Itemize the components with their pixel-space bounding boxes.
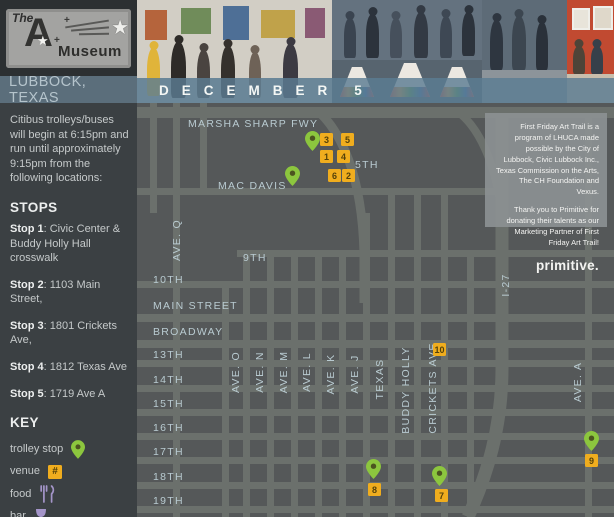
street-label-ave-m: AVE. M — [278, 351, 290, 394]
partner-thanks-text: Thank you to Primitive for donating thei… — [495, 205, 599, 249]
key-item-venue: venue# — [10, 460, 129, 483]
venue-marker-1: 1 — [320, 150, 333, 163]
trolley-stop-pin-icon — [71, 440, 85, 459]
stops-list: Stop 1: Civic Center & Buddy Holly Hall … — [10, 222, 129, 401]
museum-logo: The A ★ Museum ★ + + — [6, 9, 131, 68]
key-item-label: trolley stop — [10, 442, 63, 457]
street-label-ave-j: AVE. J — [349, 354, 361, 393]
shooting-star-icon: ★ — [111, 15, 129, 40]
venue-marker-2: 2 — [342, 169, 355, 182]
street-label-crickets-ave: CRICKETS AVE — [427, 342, 439, 433]
street-label-ave-n: AVE. N — [254, 351, 266, 392]
stop-item-2: Stop 2: 1103 Main Street, — [10, 278, 129, 307]
venue-marker-8: 8 — [368, 483, 381, 496]
key-item-label: bar — [10, 509, 26, 517]
sparkle-icon: + — [64, 15, 70, 26]
program-credit-text: First Friday Art Trail is a program of L… — [495, 122, 599, 198]
street-label-ave-a: AVE. A — [572, 362, 584, 402]
map-key-legend: trolley stopvenue#foodbarlive performanc… — [10, 438, 129, 517]
street-label-main-street: MAIN STREET — [153, 300, 238, 312]
street-label-13th: 13TH — [153, 349, 184, 361]
venue-marker-4: 4 — [337, 150, 350, 163]
venue-marker-6: 6 — [328, 169, 341, 182]
venue-marker-5: 5 — [341, 133, 354, 146]
street-label-ave-q: AVE. Q — [171, 219, 183, 261]
date-banner: DECEMBER 5 — [137, 78, 614, 103]
banner-day: 5 — [354, 83, 362, 98]
stop-item-4: Stop 4: 1812 Texas Ave — [10, 360, 129, 375]
primitive-logo: primitive. — [495, 256, 599, 276]
trolley-stop-pin-icon — [366, 459, 381, 479]
street-label-9th: 9TH — [243, 252, 267, 264]
key-item-label: food — [10, 487, 31, 502]
trolley-info-text: Citibus trolleys/buses will begin at 6:1… — [10, 113, 129, 186]
star-trail-line — [79, 33, 109, 35]
logo-museum: Museum — [58, 43, 122, 60]
key-item-food: food — [10, 483, 129, 506]
street-label-17th: 17TH — [153, 446, 184, 458]
stop-item-5: Stop 5: 1719 Ave A — [10, 387, 129, 402]
trolley-stop-pin-icon — [305, 131, 320, 151]
venue-number-square-icon: # — [48, 465, 62, 479]
street-label-mac-davis: MAC DAVIS — [218, 180, 287, 192]
art-trail-flyer: DECEMBER 5 The A ★ Museum ★ + + LUBBOCK,… — [0, 0, 614, 517]
street-label-ave-l: AVE. L — [301, 352, 313, 392]
street-label-i-27: I-27 — [500, 273, 512, 296]
key-item-label: venue — [10, 464, 40, 479]
trolley-stop-pin-icon — [584, 431, 599, 451]
venue-marker-3: 3 — [320, 133, 333, 146]
street-map: MARSHA SHARP FWYMAC DAVIS5TH9TH10THMAIN … — [137, 103, 614, 517]
logo-block: The A ★ Museum ★ + + — [0, 0, 137, 76]
street-label-ave-k: AVE. K — [325, 354, 337, 395]
location-bar: LUBBOCK, TEXAS — [0, 76, 137, 103]
stops-heading: STOPS — [10, 199, 129, 217]
venue-marker-7: 7 — [435, 489, 448, 502]
street-label-5th: 5TH — [355, 159, 379, 171]
utensils-icon — [39, 485, 56, 503]
street-label-16th: 16TH — [153, 422, 184, 434]
venue-marker-10: 10 — [433, 343, 446, 356]
street-label-texas: TEXAS — [374, 359, 386, 400]
banner-month: DECEMBER — [159, 83, 340, 98]
sparkle-icon: + — [54, 35, 60, 46]
program-info-box: First Friday Art Trail is a program of L… — [485, 113, 607, 227]
stop-item-1: Stop 1: Civic Center & Buddy Holly Hall … — [10, 222, 129, 266]
key-item-bar: bar — [10, 505, 129, 517]
star-icon: ★ — [37, 33, 49, 49]
sidebar: Citibus trolleys/buses will begin at 6:1… — [0, 103, 137, 517]
stop-item-3: Stop 3: 1801 Crickets Ave, — [10, 319, 129, 348]
key-item-trolley-stop: trolley stop — [10, 438, 129, 461]
street-label-ave-o: AVE. O — [230, 351, 242, 393]
trolley-stop-pin-icon — [432, 466, 447, 486]
street-label-broadway: BROADWAY — [153, 326, 224, 338]
wine-glass-icon — [34, 508, 48, 517]
star-trail-line — [71, 26, 109, 31]
street-label-18th: 18TH — [153, 471, 184, 483]
street-label-10th: 10TH — [153, 274, 184, 286]
key-heading: KEY — [10, 414, 129, 432]
venue-marker-9: 9 — [585, 454, 598, 467]
street-label-15th: 15TH — [153, 398, 184, 410]
trolley-stop-pin-icon — [285, 166, 300, 186]
street-label-19th: 19TH — [153, 495, 184, 507]
street-label-buddy-holly: BUDDY HOLLY — [400, 346, 412, 433]
street-label-14th: 14TH — [153, 374, 184, 386]
street-label-marsha-sharp-fwy: MARSHA SHARP FWY — [188, 118, 318, 130]
